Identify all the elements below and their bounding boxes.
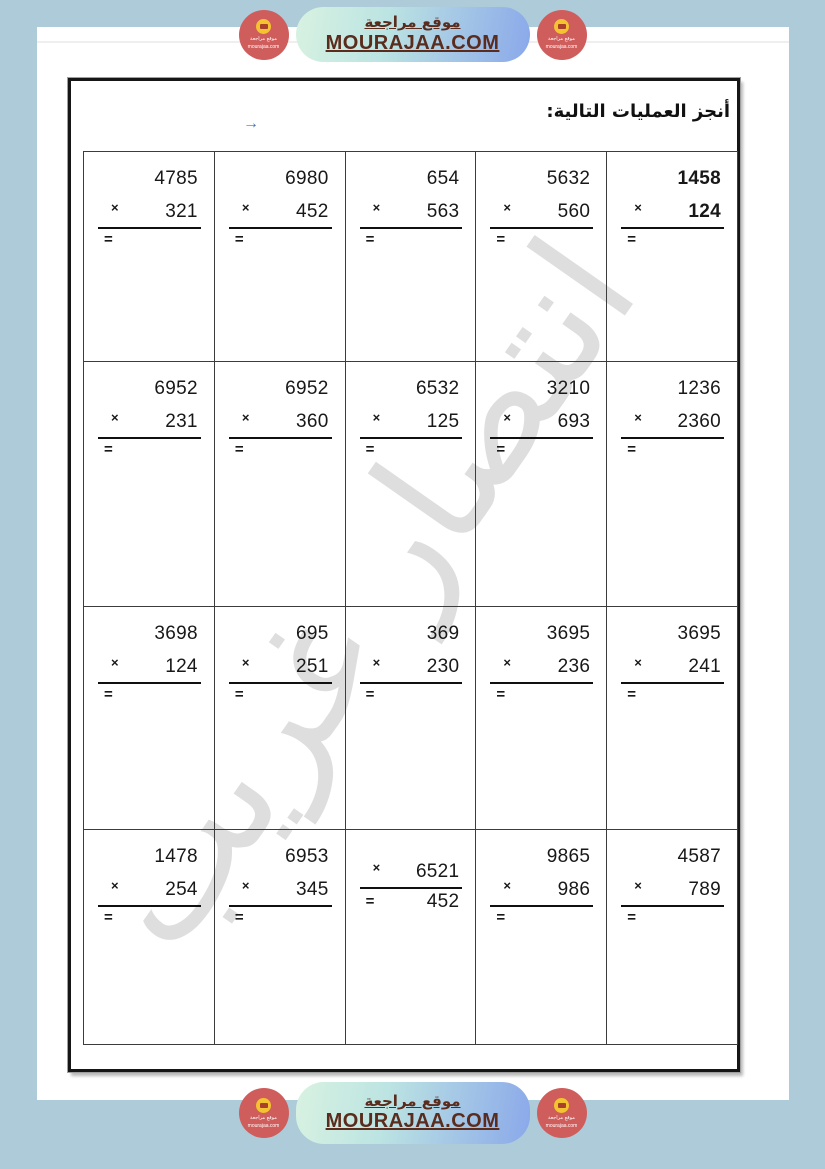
site-logo: موقع مراجعة mourajaa.com: [239, 1088, 289, 1138]
equals-sign: =: [226, 909, 334, 926]
header-banner: موقع مراجعة mourajaa.com موقع مراجعة MOU…: [0, 7, 825, 62]
multiplier: 693: [511, 410, 595, 434]
multiplicand: 3695: [487, 622, 595, 646]
problem-cell: 369 ×230 =: [346, 607, 477, 830]
multiply-icon: ×: [503, 410, 511, 425]
answer-line: [229, 437, 332, 439]
multiplicand: 6953: [226, 845, 334, 869]
problem-cell: 6980 ×452 =: [215, 152, 346, 362]
answer-line: [360, 437, 463, 439]
multiply-icon: ×: [634, 200, 642, 215]
right-arrow-icon: →: [243, 115, 259, 133]
site-title-arabic: موقع مراجعة: [364, 14, 460, 31]
equals-sign: =: [357, 441, 465, 458]
multiply-icon: ×: [503, 655, 511, 670]
equals-sign: =: [226, 231, 334, 248]
multiplicand: 6952: [226, 377, 334, 401]
problem-cell: 4587 ×789 =: [607, 830, 738, 1045]
problem-cell: 3210 ×693 =: [476, 362, 607, 607]
multiplier: 124: [642, 200, 726, 224]
answer-line: [490, 682, 593, 684]
logo-title-ar: موقع مراجعة: [250, 36, 277, 42]
site-domain-link: MOURAJAA.COM: [326, 32, 500, 55]
multiplicand: 6980: [226, 167, 334, 191]
site-logo: موقع مراجعة mourajaa.com: [239, 10, 289, 60]
multiplier: 360: [249, 410, 333, 434]
multiply-icon: ×: [634, 655, 642, 670]
problem-cell: 654 ×563 =: [346, 152, 477, 362]
problem-cell: 3695 ×241 =: [607, 607, 738, 830]
answer-line: [98, 905, 201, 907]
multiply-icon: ×: [503, 878, 511, 893]
multiplicand: 3698: [95, 622, 203, 646]
multiplier: 251: [249, 655, 333, 679]
problems-grid: 1458 ×124 = 5632 ×560 = 654 ×563 = 6980 …: [83, 151, 738, 1045]
multiplier: 230: [380, 655, 464, 679]
multiply-icon: ×: [111, 878, 119, 893]
multiply-icon: ×: [634, 878, 642, 893]
equals-sign: =: [226, 441, 334, 458]
logo-title-ar: موقع مراجعة: [250, 1115, 277, 1121]
multiplicand: 654: [357, 167, 465, 191]
worksheet-frame: أنجز العمليات التالية: → انتصار غريب 145…: [68, 78, 740, 1072]
multiply-icon: ×: [242, 200, 250, 215]
site-logo: موقع مراجعة mourajaa.com: [537, 10, 587, 60]
multiplicand: 5632: [487, 167, 595, 191]
answer-line: [229, 905, 332, 907]
multiplicand: 6952: [95, 377, 203, 401]
logo-domain: mourajaa.com: [248, 44, 280, 50]
multiplicand: 6521: [380, 860, 464, 884]
answer-line: [360, 227, 463, 229]
equals-sign: =: [618, 686, 726, 703]
equals-sign: =: [226, 686, 334, 703]
multiply-icon: ×: [111, 410, 119, 425]
multiply-icon: ×: [111, 200, 119, 215]
logo-title-ar: موقع مراجعة: [548, 36, 575, 42]
answer-line: [98, 682, 201, 684]
equals-sign: =: [487, 441, 595, 458]
multiplier: 986: [511, 878, 595, 902]
site-banner-pill: موقع مراجعة MOURAJAA.COM: [296, 7, 530, 62]
problem-cell: 3695 ×236 =: [476, 607, 607, 830]
multiply-icon: ×: [242, 655, 250, 670]
multiplicand: 1236: [618, 377, 726, 401]
problem-cell: 1478 ×254 =: [84, 830, 215, 1045]
multiply-icon: ×: [373, 655, 381, 670]
multiplier: 321: [119, 200, 203, 224]
multiply-icon: ×: [242, 410, 250, 425]
multiplicand: 3695: [618, 622, 726, 646]
multiplier: 789: [642, 878, 726, 902]
logo-book-icon: [256, 19, 271, 34]
multiplicand: 695: [226, 622, 334, 646]
multiplier: 231: [119, 410, 203, 434]
logo-domain: mourajaa.com: [546, 44, 578, 50]
multiply-icon: ×: [373, 200, 381, 215]
multiply-icon: ×: [373, 860, 381, 875]
multiplier: 254: [119, 878, 203, 902]
footer-banner: موقع مراجعة mourajaa.com موقع مراجعة MOU…: [0, 1082, 825, 1144]
answer-line: [98, 227, 201, 229]
multiplier: 236: [511, 655, 595, 679]
logo-book-icon: [554, 19, 569, 34]
problem-cell: 3698 ×124 =: [84, 607, 215, 830]
equals-sign: =: [357, 231, 465, 248]
answer-line: [360, 682, 463, 684]
multiplier: 241: [642, 655, 726, 679]
equals-sign: =: [95, 231, 203, 248]
multiply-icon: ×: [634, 410, 642, 425]
problem-cell: 1236 ×2360 =: [607, 362, 738, 607]
answer-line: [490, 905, 593, 907]
problem-cell: 4785 ×321 =: [84, 152, 215, 362]
answer-line: [490, 227, 593, 229]
logo-title-ar: موقع مراجعة: [548, 1115, 575, 1121]
logo-book-icon: [554, 1098, 569, 1113]
logo-domain: mourajaa.com: [248, 1123, 280, 1129]
multiplier: 2360: [642, 410, 726, 434]
problem-cell-inline: ×6521 =452: [346, 830, 477, 1045]
equals-sign: =: [487, 686, 595, 703]
multiplicand: 9865: [487, 845, 595, 869]
equals-sign: =: [487, 231, 595, 248]
equals-sign: =: [618, 231, 726, 248]
problem-cell: 9865 ×986 =: [476, 830, 607, 1045]
problem-cell: 6953 ×345 =: [215, 830, 346, 1045]
problem-cell: 5632 ×560 =: [476, 152, 607, 362]
multiplier: 345: [249, 878, 333, 902]
site-title-arabic: موقع مراجعة: [364, 1093, 460, 1110]
logo-domain: mourajaa.com: [546, 1123, 578, 1129]
worksheet-title: أنجز العمليات التالية:: [546, 101, 730, 122]
multiplier: 452: [249, 200, 333, 224]
problem-cell: 6952 ×231 =: [84, 362, 215, 607]
answer-line: [490, 437, 593, 439]
multiplier: 452: [374, 890, 464, 914]
problem-cell: 6532 ×125 =: [346, 362, 477, 607]
answer-line: [229, 227, 332, 229]
multiplicand: 1458: [618, 167, 726, 191]
multiplier: 124: [119, 655, 203, 679]
multiplier: 563: [380, 200, 464, 224]
answer-line: [98, 437, 201, 439]
equals-sign: =: [618, 909, 726, 926]
multiply-icon: ×: [242, 878, 250, 893]
answer-line: [621, 437, 724, 439]
equals-sign: =: [95, 909, 203, 926]
multiply-icon: ×: [111, 655, 119, 670]
answer-line: [621, 227, 724, 229]
multiplier: 560: [511, 200, 595, 224]
equals-sign: =: [357, 893, 375, 910]
multiplier: 125: [380, 410, 464, 434]
answer-line: [229, 682, 332, 684]
multiplicand: 1478: [95, 845, 203, 869]
equals-sign: =: [95, 686, 203, 703]
multiplicand: 6532: [357, 377, 465, 401]
equals-sign: =: [357, 686, 465, 703]
problem-cell: 1458 ×124 =: [607, 152, 738, 362]
multiply-icon: ×: [373, 410, 381, 425]
site-logo: موقع مراجعة mourajaa.com: [537, 1088, 587, 1138]
multiplicand: 4587: [618, 845, 726, 869]
answer-line: [621, 682, 724, 684]
answer-line: [621, 905, 724, 907]
answer-line: [360, 887, 463, 889]
equals-sign: =: [487, 909, 595, 926]
site-domain-link: MOURAJAA.COM: [326, 1110, 500, 1133]
site-banner-pill: موقع مراجعة MOURAJAA.COM: [296, 1082, 530, 1144]
multiplicand: 369: [357, 622, 465, 646]
multiplicand: 3210: [487, 377, 595, 401]
logo-book-icon: [256, 1098, 271, 1113]
multiply-icon: ×: [503, 200, 511, 215]
problem-cell: 6952 ×360 =: [215, 362, 346, 607]
multiplicand: 4785: [95, 167, 203, 191]
equals-sign: =: [95, 441, 203, 458]
equals-sign: =: [618, 441, 726, 458]
problem-cell: 695 ×251 =: [215, 607, 346, 830]
